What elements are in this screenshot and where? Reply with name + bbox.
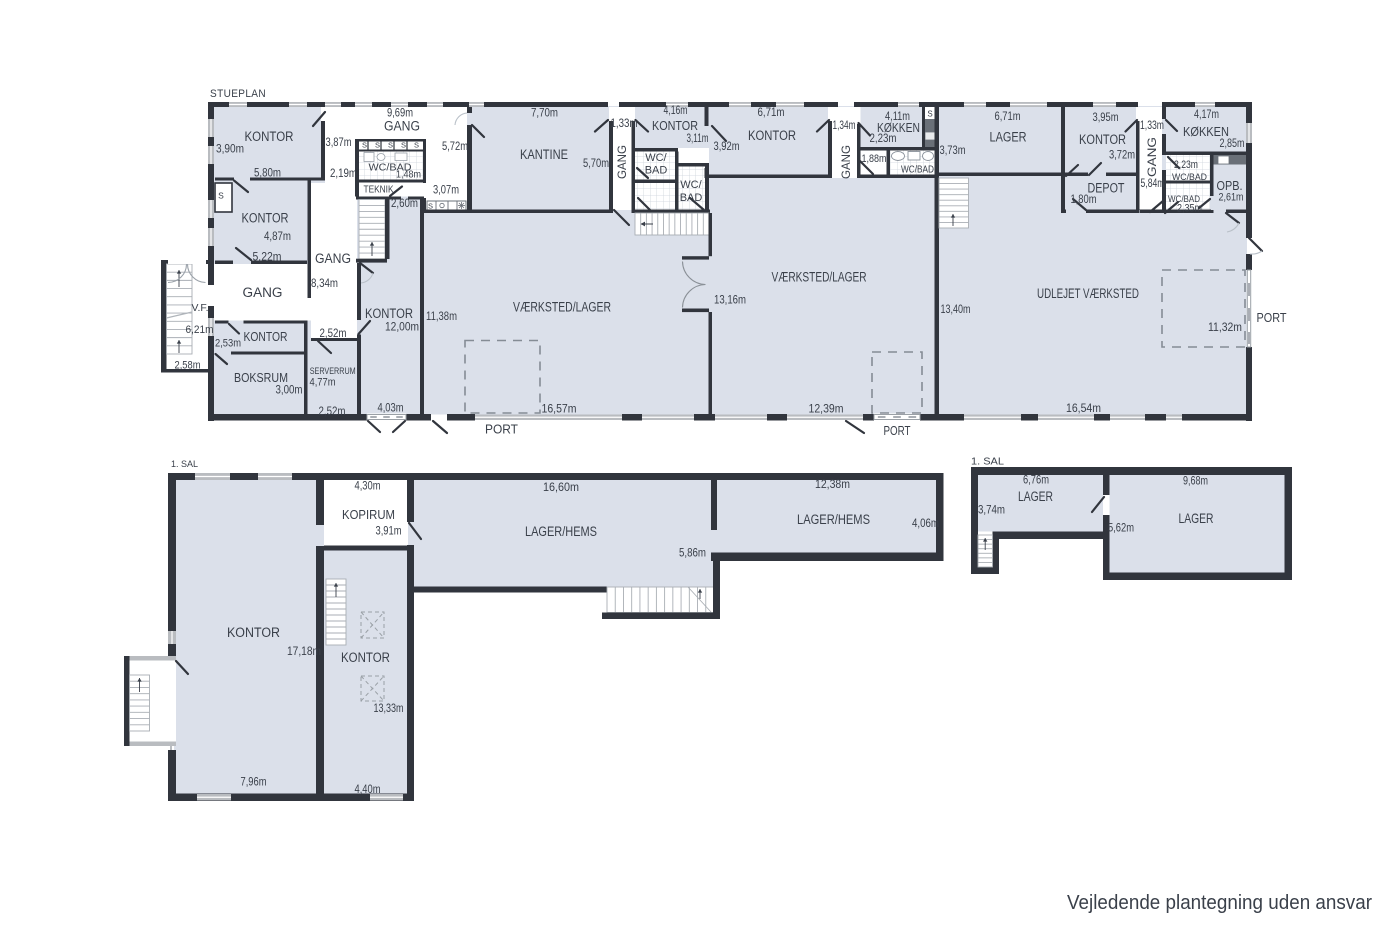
svg-text:5,84m: 5,84m: [1141, 178, 1165, 190]
svg-text:8,34m: 8,34m: [311, 278, 338, 290]
svg-text:BAD: BAD: [680, 192, 703, 204]
svg-text:KONTOR: KONTOR: [244, 330, 288, 344]
svg-text:13,33m: 13,33m: [374, 703, 404, 715]
svg-text:LAGER/HEMS: LAGER/HEMS: [525, 524, 597, 539]
svg-text:3,95m: 3,95m: [1093, 112, 1119, 124]
svg-text:3,00m: 3,00m: [276, 385, 303, 397]
svg-text:V.F.: V.F.: [192, 302, 209, 314]
svg-text:3,87m: 3,87m: [326, 137, 352, 149]
svg-text:VÆRKSTED/LAGER: VÆRKSTED/LAGER: [772, 270, 867, 285]
svg-text:2,53m: 2,53m: [215, 338, 241, 350]
svg-text:3,07m: 3,07m: [433, 185, 459, 197]
svg-text:LAGER: LAGER: [1018, 489, 1053, 504]
svg-text:Vejledende plantegning uden an: Vejledende plantegning uden ansvar: [1067, 891, 1372, 914]
svg-text:2,58m: 2,58m: [175, 360, 201, 372]
svg-text:S: S: [414, 141, 419, 150]
svg-text:1,33m: 1,33m: [1140, 120, 1164, 132]
svg-text:11,32m: 11,32m: [1208, 322, 1242, 334]
svg-text:1,48m: 1,48m: [396, 169, 421, 181]
svg-text:16,57m: 16,57m: [542, 404, 577, 416]
svg-text:6,21m: 6,21m: [186, 324, 214, 336]
svg-text:PORT: PORT: [884, 424, 911, 438]
svg-text:3,92m: 3,92m: [714, 141, 740, 153]
svg-text:KONTOR: KONTOR: [245, 129, 294, 144]
svg-text:2,35m: 2,35m: [1177, 203, 1202, 215]
svg-text:BAD: BAD: [645, 165, 668, 177]
svg-text:3,11m: 3,11m: [687, 133, 709, 145]
svg-text:2,23m: 2,23m: [1174, 159, 1198, 171]
svg-text:TEKNIK: TEKNIK: [364, 185, 394, 196]
svg-text:4,17m: 4,17m: [1194, 109, 1219, 121]
svg-text:3,91m: 3,91m: [376, 526, 402, 538]
svg-text:13,16m: 13,16m: [714, 295, 746, 307]
svg-text:S: S: [401, 141, 406, 150]
svg-text:4,06m: 4,06m: [912, 518, 939, 530]
svg-text:9,68m: 9,68m: [1183, 476, 1208, 488]
svg-text:5,72m: 5,72m: [442, 141, 468, 153]
svg-text:16,60m: 16,60m: [543, 482, 579, 494]
svg-text:2,52m: 2,52m: [319, 406, 346, 418]
svg-text:11,38m: 11,38m: [426, 311, 457, 323]
svg-text:12,39m: 12,39m: [809, 404, 844, 416]
svg-text:GANG: GANG: [384, 119, 420, 134]
svg-text:WC/BAD: WC/BAD: [901, 165, 934, 176]
svg-text:6,76m: 6,76m: [1023, 475, 1049, 487]
svg-text:7,70m: 7,70m: [531, 108, 558, 120]
svg-text:GANG: GANG: [615, 145, 629, 179]
svg-text:17,18m: 17,18m: [287, 646, 321, 658]
svg-text:2,61m: 2,61m: [1219, 192, 1244, 204]
svg-text:1,34m: 1,34m: [833, 120, 856, 132]
svg-text:12,38m: 12,38m: [815, 479, 850, 491]
svg-text:3,72m: 3,72m: [1109, 150, 1135, 162]
svg-text:S: S: [362, 141, 367, 150]
svg-text:KONTOR: KONTOR: [227, 625, 280, 640]
svg-text:S: S: [388, 141, 393, 150]
svg-text:1. SAL: 1. SAL: [971, 457, 1004, 468]
svg-text:5,62m: 5,62m: [1108, 523, 1134, 535]
svg-text:1,88m: 1,88m: [862, 153, 887, 165]
svg-text:LAGER/HEMS: LAGER/HEMS: [797, 512, 870, 527]
svg-text:GANG: GANG: [1145, 137, 1159, 177]
svg-text:PORT: PORT: [1257, 310, 1287, 325]
svg-text:WC/: WC/: [680, 179, 702, 191]
svg-text:3,73m: 3,73m: [940, 145, 966, 157]
svg-text:BOKSRUM: BOKSRUM: [234, 371, 288, 385]
svg-text:KONTOR: KONTOR: [242, 211, 289, 226]
svg-text:5,80m: 5,80m: [254, 168, 281, 180]
svg-text:1,33m: 1,33m: [611, 118, 638, 130]
svg-text:LAGER: LAGER: [990, 130, 1027, 145]
svg-text:S: S: [375, 141, 380, 150]
svg-text:STUEPLAN: STUEPLAN: [210, 88, 266, 100]
svg-text:KOPIRUM: KOPIRUM: [342, 508, 395, 522]
svg-text:6,71m: 6,71m: [995, 111, 1021, 123]
svg-text:KONTOR: KONTOR: [748, 128, 796, 143]
svg-text:1,80m: 1,80m: [1071, 194, 1097, 206]
svg-text:6,71m: 6,71m: [758, 107, 785, 119]
svg-text:12,00m: 12,00m: [385, 322, 419, 334]
svg-text:2,19m: 2,19m: [330, 168, 357, 180]
svg-text:VÆRKSTED/LAGER: VÆRKSTED/LAGER: [513, 300, 611, 315]
svg-text:4,87m: 4,87m: [264, 231, 291, 243]
svg-text:4,77m: 4,77m: [310, 377, 336, 389]
svg-text:PORT: PORT: [485, 422, 518, 437]
svg-text:3,74m: 3,74m: [978, 505, 1005, 517]
svg-text:4,16m: 4,16m: [664, 105, 688, 117]
svg-text:13,40m: 13,40m: [941, 304, 971, 316]
svg-text:4,03m: 4,03m: [378, 403, 404, 415]
svg-text:7,96m: 7,96m: [241, 777, 267, 789]
svg-text:WC/: WC/: [645, 152, 667, 164]
svg-text:16,54m: 16,54m: [1066, 403, 1101, 415]
svg-text:2,85m: 2,85m: [1220, 138, 1245, 150]
svg-text:GANG: GANG: [243, 285, 283, 300]
svg-text:5,86m: 5,86m: [679, 548, 706, 560]
svg-text:S: S: [218, 191, 224, 201]
svg-text:2,52m: 2,52m: [320, 328, 347, 340]
svg-text:2,23m: 2,23m: [870, 133, 897, 145]
svg-text:KONTOR: KONTOR: [1079, 132, 1126, 147]
svg-text:LAGER: LAGER: [1179, 510, 1214, 526]
svg-text:4,11m: 4,11m: [885, 111, 910, 123]
svg-text:GANG: GANG: [839, 145, 853, 179]
svg-text:4,40m: 4,40m: [355, 784, 381, 796]
svg-text:5,22m: 5,22m: [253, 252, 282, 264]
svg-text:KONTOR: KONTOR: [341, 650, 390, 665]
svg-text:KØKKEN: KØKKEN: [1183, 124, 1229, 139]
svg-text:1. SAL: 1. SAL: [171, 459, 198, 470]
svg-text:5,70m: 5,70m: [583, 158, 609, 170]
svg-text:UDLEJET VÆRKSTED: UDLEJET VÆRKSTED: [1037, 286, 1139, 301]
svg-text:KANTINE: KANTINE: [520, 147, 568, 162]
svg-text:WC/BAD: WC/BAD: [1172, 172, 1207, 183]
svg-text:S: S: [927, 110, 932, 119]
svg-text:4,30m: 4,30m: [355, 481, 381, 493]
svg-text:KONTOR: KONTOR: [365, 306, 413, 321]
svg-text:SERVERRUM: SERVERRUM: [310, 366, 356, 377]
svg-text:KONTOR: KONTOR: [652, 118, 698, 133]
svg-text:S: S: [428, 202, 433, 211]
svg-text:2,60m: 2,60m: [391, 198, 418, 210]
svg-text:3,90m: 3,90m: [216, 144, 244, 156]
svg-text:GANG: GANG: [315, 251, 351, 266]
